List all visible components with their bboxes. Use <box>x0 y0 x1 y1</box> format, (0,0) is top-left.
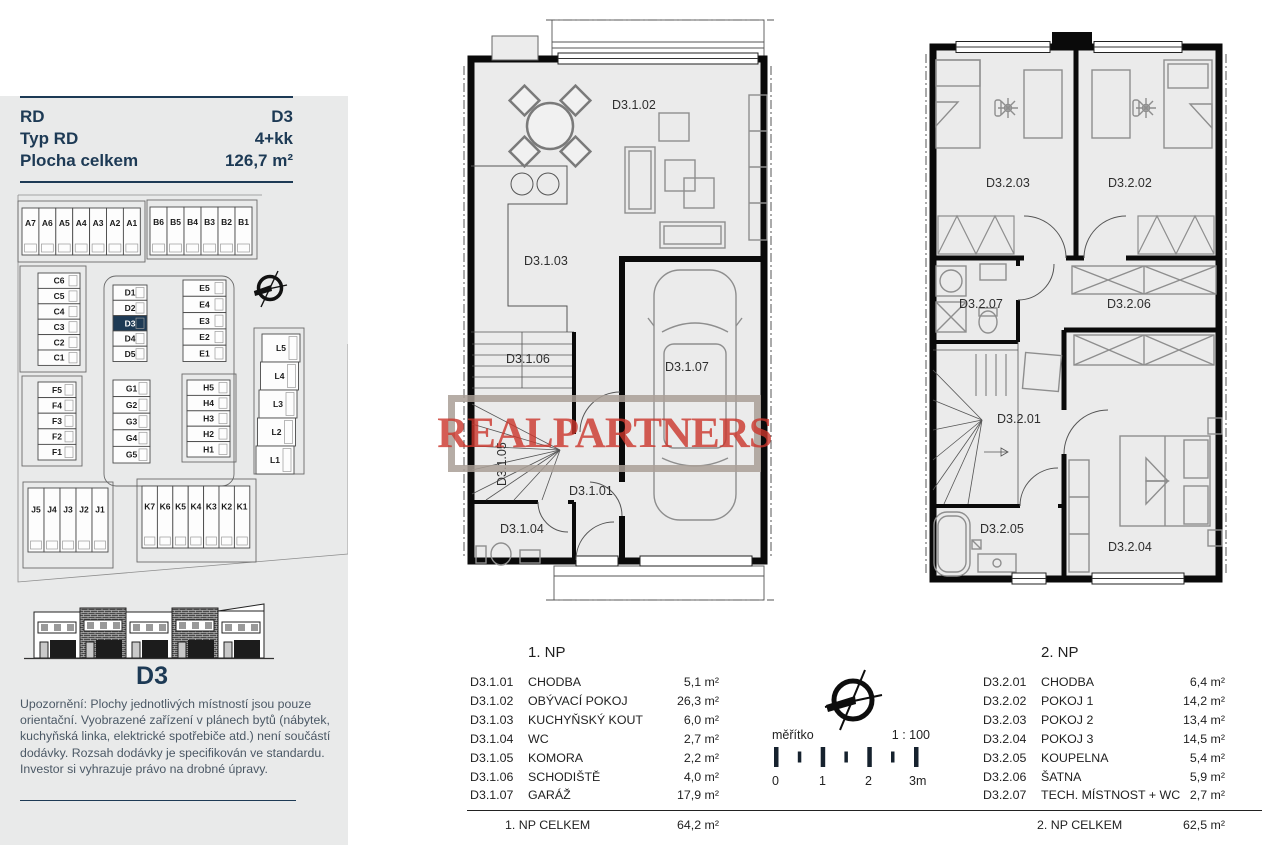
site-lot: J3 <box>60 488 76 552</box>
legend-1np-title: 1. NP <box>528 644 719 661</box>
svg-text:A2: A2 <box>110 218 121 228</box>
floorplan-2np: D3.2.03 D3.2.02 D3.2.07 D3.2.06 D3.2.01 … <box>924 20 1236 626</box>
room-label: D3.1.04 <box>500 522 544 536</box>
room-label: D3.1.05 <box>495 442 509 486</box>
room-code: D3.2.01 <box>983 673 1041 692</box>
svg-text:H5: H5 <box>203 383 214 393</box>
room-area: 26,3 m² <box>677 692 719 711</box>
room-label: D3.2.07 <box>959 297 1003 311</box>
room-code: D3.1.06 <box>470 768 528 787</box>
site-lot: B6 <box>150 207 167 255</box>
svg-text:D4: D4 <box>125 334 136 344</box>
svg-text:D1: D1 <box>125 288 136 298</box>
site-lot: H3 <box>187 411 230 426</box>
svg-text:D5: D5 <box>125 349 136 359</box>
legend-1np-rows: D3.1.01 CHODBA 5,1 m² D3.1.02 OBÝVACÍ PO… <box>470 673 719 805</box>
site-col-l: L5L4L3L2L1 <box>256 334 300 474</box>
room-name: POKOJ 3 <box>1041 730 1183 749</box>
svg-text:C1: C1 <box>54 353 65 363</box>
site-lot: A1 <box>123 208 140 255</box>
total-label: 2. NP CELKEM <box>1037 818 1122 832</box>
site-lot: F4 <box>38 398 76 414</box>
site-lot: C2 <box>38 335 80 350</box>
site-lot: C1 <box>38 350 80 365</box>
site-col-d: D1D2D3D4D5 <box>113 285 147 362</box>
svg-text:C6: C6 <box>54 276 65 286</box>
spec-row: Plocha celkem 126,7 m² <box>20 150 293 172</box>
room-name: POKOJ 1 <box>1041 692 1183 711</box>
site-lot: G5 <box>113 446 150 463</box>
room-label: D3.2.04 <box>1108 540 1152 554</box>
scale-numbers: 0 1 2 3m <box>772 774 930 788</box>
site-lot: K4 <box>188 486 203 548</box>
scale-ticks <box>772 747 930 769</box>
room-area: 5,9 m² <box>1190 768 1225 787</box>
site-lot: A5 <box>56 208 73 255</box>
svg-text:E2: E2 <box>199 332 210 342</box>
room-label: D3.1.03 <box>524 254 568 268</box>
room-name: TECH. MÍSTNOST + WC <box>1041 786 1190 805</box>
site-lot: A7 <box>22 208 39 255</box>
svg-text:A4: A4 <box>76 218 87 228</box>
room-name: POKOJ 2 <box>1041 711 1183 730</box>
site-row-b: B6B5B4B3B2B1 <box>150 207 252 255</box>
house-row <box>24 604 274 659</box>
legend-row: D3.1.01 CHODBA 5,1 m² <box>470 673 719 692</box>
site-lot: C3 <box>38 319 80 334</box>
site-col-f: F5F4F3F2F1 <box>38 382 76 460</box>
floorplan-1np: D3.1.02 D3.1.03 D3.1.06 D3.1.05 D3.1.01 … <box>462 14 792 626</box>
site-lot: D3 <box>113 316 147 331</box>
room-label: D3.2.03 <box>986 176 1030 190</box>
room-area: 2,7 m² <box>684 730 719 749</box>
legend-row: D3.2.06 ŠATNA 5,9 m² <box>983 768 1225 787</box>
svg-text:B1: B1 <box>238 217 249 227</box>
site-lot: J4 <box>44 488 60 552</box>
total-area: 62,5 m² <box>1183 818 1225 832</box>
room-label: D3.2.02 <box>1108 176 1152 190</box>
room-name: ŠATNA <box>1041 768 1190 787</box>
garage-door <box>640 556 752 566</box>
site-lot: E3 <box>183 313 226 329</box>
svg-text:D2: D2 <box>125 303 136 313</box>
legend-row: D3.2.03 POKOJ 2 13,4 m² <box>983 711 1225 730</box>
svg-text:G5: G5 <box>126 450 138 460</box>
svg-text:J5: J5 <box>31 504 41 514</box>
site-lot: L4 <box>261 362 299 390</box>
svg-text:L2: L2 <box>272 427 282 437</box>
site-lot: D4 <box>113 331 147 346</box>
legend-row: D3.2.04 POKOJ 3 14,5 m² <box>983 730 1225 749</box>
svg-text:D3: D3 <box>125 318 136 328</box>
svg-text:C3: C3 <box>54 322 65 332</box>
site-lot: L2 <box>258 418 296 446</box>
site-lot: F3 <box>38 413 76 429</box>
scale-label: měřítko <box>772 728 814 742</box>
site-col-h: H5H4H3H2H1 <box>187 380 230 457</box>
site-lot: L3 <box>259 390 297 418</box>
site-lot: K3 <box>204 486 219 548</box>
site-lot: E1 <box>183 345 226 361</box>
svg-text:G3: G3 <box>126 417 138 427</box>
legend-row: D3.2.07 TECH. MÍSTNOST + WC 2,7 m² <box>983 786 1225 805</box>
svg-text:A6: A6 <box>42 218 53 228</box>
totals-divider <box>467 810 1262 811</box>
svg-text:E5: E5 <box>199 283 210 293</box>
legend-row: D3.1.02 OBÝVACÍ POKOJ 26,3 m² <box>470 692 719 711</box>
room-area: 4,0 m² <box>684 768 719 787</box>
legend-2np: 2. NP D3.2.01 CHODBA 6,4 m² D3.2.02 POKO… <box>983 644 1225 805</box>
spec-row: RD D3 <box>20 106 293 128</box>
svg-text:L5: L5 <box>276 343 286 353</box>
svg-text:C5: C5 <box>54 291 65 301</box>
svg-text:E3: E3 <box>199 316 210 326</box>
svg-text:L1: L1 <box>270 455 280 465</box>
svg-text:F3: F3 <box>52 416 62 426</box>
spec-value: D3 <box>271 106 293 128</box>
site-lot: K7 <box>142 486 157 548</box>
room-name: KUCHYŇSKÝ KOUT <box>528 711 684 730</box>
room-label: D3.2.06 <box>1107 297 1151 311</box>
compass-icon <box>821 668 885 732</box>
room-area: 6,4 m² <box>1190 673 1225 692</box>
site-lot: E5 <box>183 280 226 296</box>
site-lot: A2 <box>107 208 124 255</box>
room-code: D3.2.02 <box>983 692 1041 711</box>
legend-row: D3.1.07 GARÁŽ 17,9 m² <box>470 786 719 805</box>
total-area: 64,2 m² <box>677 818 719 832</box>
total-label: 1. NP CELKEM <box>505 818 590 832</box>
site-lot: D5 <box>113 346 147 361</box>
floorplan-sheet: RD D3 Typ RD 4+kk Plocha celkem 126,7 m² <box>0 0 1262 845</box>
spec-value: 4+kk <box>255 128 293 150</box>
site-col-e: E5E4E3E2E1 <box>183 280 226 362</box>
legend-row: D3.1.04 WC 2,7 m² <box>470 730 719 749</box>
site-lot: F1 <box>38 444 76 460</box>
site-lot: C4 <box>38 304 80 319</box>
site-lot: K6 <box>157 486 172 548</box>
site-lot: A6 <box>39 208 56 255</box>
room-name: CHODBA <box>1041 673 1190 692</box>
room-code: D3.2.06 <box>983 768 1041 787</box>
site-lot: B2 <box>218 207 235 255</box>
room-area: 14,5 m² <box>1183 730 1225 749</box>
svg-text:F4: F4 <box>52 400 62 410</box>
site-lot: G2 <box>113 397 150 414</box>
room-name: KOMORA <box>528 749 684 768</box>
site-row-a: A7A6A5A4A3A2A1 <box>22 208 140 255</box>
room-name: SCHODIŠTĚ <box>528 768 684 787</box>
svg-text:H2: H2 <box>203 429 214 439</box>
site-lot: F5 <box>38 382 76 398</box>
room-label: D3.1.06 <box>506 352 550 366</box>
site-lot: B5 <box>167 207 184 255</box>
site-lot: C5 <box>38 288 80 303</box>
legend-row: D3.2.02 POKOJ 1 14,2 m² <box>983 692 1225 711</box>
room-label: D3.2.05 <box>980 522 1024 536</box>
svg-text:G2: G2 <box>126 400 138 410</box>
svg-text:C2: C2 <box>54 337 65 347</box>
site-lot: K2 <box>219 486 234 548</box>
site-lot: C6 <box>38 273 80 288</box>
legend-row: D3.2.01 CHODBA 6,4 m² <box>983 673 1225 692</box>
svg-text:F5: F5 <box>52 385 62 395</box>
svg-text:G4: G4 <box>126 433 138 443</box>
scale-ratio: 1 : 100 <box>892 728 930 742</box>
site-lot: J2 <box>76 488 92 552</box>
room-area: 2,7 m² <box>1190 786 1225 805</box>
site-lot: D2 <box>113 300 147 315</box>
site-lot: F2 <box>38 429 76 445</box>
site-lot: B1 <box>235 207 252 255</box>
svg-text:H3: H3 <box>203 414 214 424</box>
room-label: D3.1.01 <box>569 484 613 498</box>
svg-text:B2: B2 <box>221 217 232 227</box>
site-lot: E2 <box>183 329 226 345</box>
svg-text:K1: K1 <box>237 502 248 512</box>
disclaimer-text: Upozornění: Plochy jednotlivých místnost… <box>20 696 332 777</box>
room-code: D3.2.04 <box>983 730 1041 749</box>
svg-text:A1: A1 <box>126 218 137 228</box>
compass-icon <box>254 271 287 307</box>
svg-text:L3: L3 <box>273 399 283 409</box>
room-code: D3.1.02 <box>470 692 528 711</box>
site-row-j: J5J4J3J2J1 <box>28 488 108 552</box>
legend-row: D3.1.05 KOMORA 2,2 m² <box>470 749 719 768</box>
room-name: CHODBA <box>528 673 684 692</box>
room-area: 2,2 m² <box>684 749 719 768</box>
room-name: KOUPELNA <box>1041 749 1190 768</box>
scale-bar: měřítko 1 : 100 0 1 2 3m <box>772 728 930 788</box>
site-lot: H5 <box>187 380 230 395</box>
svg-text:B3: B3 <box>204 217 215 227</box>
svg-text:K3: K3 <box>206 502 217 512</box>
room-code: D3.1.01 <box>470 673 528 692</box>
site-lot: J5 <box>28 488 44 552</box>
spec-label: Typ RD <box>20 128 78 150</box>
svg-text:H1: H1 <box>203 444 214 454</box>
site-lot: B3 <box>201 207 218 255</box>
svg-text:G1: G1 <box>126 383 138 393</box>
svg-text:F2: F2 <box>52 432 62 442</box>
panel-divider <box>20 800 296 801</box>
svg-text:B5: B5 <box>170 217 181 227</box>
room-code: D3.2.05 <box>983 749 1041 768</box>
site-col-c: C6C5C4C3C2C1 <box>38 273 80 365</box>
svg-text:E4: E4 <box>199 299 210 309</box>
site-lot: E4 <box>183 296 226 312</box>
room-area: 17,9 m² <box>677 786 719 805</box>
room-code: D3.2.07 <box>983 786 1041 805</box>
site-lot: L1 <box>256 446 294 474</box>
room-code: D3.1.04 <box>470 730 528 749</box>
legend-1np: 1. NP D3.1.01 CHODBA 5,1 m² D3.1.02 OBÝV… <box>470 644 719 805</box>
terrace-bottom <box>546 566 774 600</box>
svg-text:A5: A5 <box>59 218 70 228</box>
room-name: GARÁŽ <box>528 786 677 805</box>
info-panel: RD D3 Typ RD 4+kk Plocha celkem 126,7 m² <box>0 96 348 845</box>
room-label: D3.2.01 <box>997 412 1041 426</box>
site-lot: G4 <box>113 430 150 447</box>
site-lot: J1 <box>92 488 108 552</box>
room-area: 14,2 m² <box>1183 692 1225 711</box>
svg-text:A3: A3 <box>93 218 104 228</box>
entry-door <box>576 556 618 566</box>
svg-text:H4: H4 <box>203 398 214 408</box>
room-code: D3.1.05 <box>470 749 528 768</box>
svg-text:F1: F1 <box>52 447 62 457</box>
legend-2np-title: 2. NP <box>1041 644 1225 661</box>
site-lot: K5 <box>173 486 188 548</box>
svg-text:C4: C4 <box>54 307 65 317</box>
spec-row: Typ RD 4+kk <box>20 128 293 150</box>
legend-2np-rows: D3.2.01 CHODBA 6,4 m² D3.2.02 POKOJ 1 14… <box>983 673 1225 805</box>
svg-text:K4: K4 <box>190 502 201 512</box>
site-lot: A4 <box>73 208 90 255</box>
svg-text:K5: K5 <box>175 502 186 512</box>
site-lot: H2 <box>187 426 230 441</box>
room-area: 13,4 m² <box>1183 711 1225 730</box>
spec-table: RD D3 Typ RD 4+kk Plocha celkem 126,7 m² <box>20 96 293 183</box>
legend-row: D3.1.06 SCHODIŠTĚ 4,0 m² <box>470 768 719 787</box>
room-label: D3.1.07 <box>665 360 709 374</box>
legend-row: D3.1.03 KUCHYŇSKÝ KOUT 6,0 m² <box>470 711 719 730</box>
svg-text:J1: J1 <box>95 504 105 514</box>
svg-text:K6: K6 <box>160 502 171 512</box>
site-row-k: K7K6K5K4K3K2K1 <box>142 486 250 548</box>
total-1np: 1. NP CELKEM 64,2 m² <box>505 818 719 832</box>
site-lot: H1 <box>187 442 230 457</box>
elevation-drawing <box>24 602 274 664</box>
site-plan: A7A6A5A4A3A2A1 B6B5B4B3B2B1 C6C5C4C3C2C1… <box>8 192 348 594</box>
room-area: 5,1 m² <box>684 673 719 692</box>
svg-text:B6: B6 <box>153 217 164 227</box>
legend-row: D3.2.05 KOUPELNA 5,4 m² <box>983 749 1225 768</box>
room-code: D3.1.03 <box>470 711 528 730</box>
svg-text:J3: J3 <box>63 504 73 514</box>
site-lot: K1 <box>234 486 249 548</box>
svg-text:J2: J2 <box>79 504 89 514</box>
spec-value: 126,7 m² <box>225 150 293 172</box>
svg-text:J4: J4 <box>47 504 57 514</box>
room-area: 6,0 m² <box>684 711 719 730</box>
spec-label: RD <box>20 106 45 128</box>
house-type-caption: D3 <box>2 662 302 691</box>
svg-text:E1: E1 <box>199 348 210 358</box>
svg-text:K7: K7 <box>144 502 155 512</box>
svg-text:A7: A7 <box>25 218 36 228</box>
svg-text:L4: L4 <box>275 371 285 381</box>
site-lot: L5 <box>262 334 300 362</box>
site-lot: D1 <box>113 285 147 300</box>
room-label: D3.1.02 <box>612 98 656 112</box>
room-code: D3.2.03 <box>983 711 1041 730</box>
site-lot: B4 <box>184 207 201 255</box>
room-code: D3.1.07 <box>470 786 528 805</box>
room-name: OBÝVACÍ POKOJ <box>528 692 677 711</box>
site-lot: G3 <box>113 413 150 430</box>
room-area: 5,4 m² <box>1190 749 1225 768</box>
spec-label: Plocha celkem <box>20 150 138 172</box>
site-col-g: G1G2G3G4G5 <box>113 380 150 463</box>
room-name: WC <box>528 730 684 749</box>
svg-text:K2: K2 <box>221 502 232 512</box>
terrace-top <box>546 20 774 56</box>
site-lot: A3 <box>90 208 107 255</box>
site-lot: H4 <box>187 395 230 410</box>
total-2np: 2. NP CELKEM 62,5 m² <box>1037 818 1225 832</box>
site-lot: G1 <box>113 380 150 397</box>
svg-text:B4: B4 <box>187 217 198 227</box>
